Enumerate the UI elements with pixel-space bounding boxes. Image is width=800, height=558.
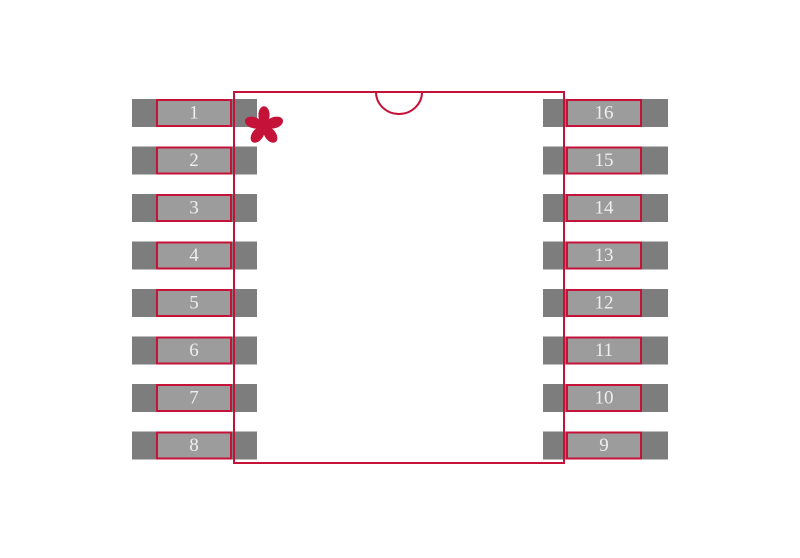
pin-number-6: 6 — [189, 340, 199, 361]
pin-number-8: 8 — [189, 435, 199, 456]
pin-number-9: 9 — [599, 435, 609, 456]
footprint-diagram: 12345678161514131211109 — [0, 0, 800, 558]
pin-number-11: 11 — [595, 340, 613, 361]
pin-number-5: 5 — [189, 293, 199, 314]
pin-number-10: 10 — [595, 388, 614, 409]
pin-number-14: 14 — [595, 198, 615, 219]
pin-number-16: 16 — [595, 103, 614, 124]
pin-number-7: 7 — [189, 388, 199, 409]
pin-number-4: 4 — [189, 245, 199, 266]
pin-number-1: 1 — [189, 103, 199, 124]
pin-number-12: 12 — [595, 293, 614, 314]
pin-number-3: 3 — [189, 198, 199, 219]
pin1-orientation-notch-icon — [376, 92, 422, 114]
component-body-outline — [234, 92, 564, 463]
pin-number-13: 13 — [595, 245, 614, 266]
pin-number-15: 15 — [595, 150, 614, 171]
pin-number-2: 2 — [189, 150, 199, 171]
footprint-svg: 12345678161514131211109 — [0, 0, 800, 558]
